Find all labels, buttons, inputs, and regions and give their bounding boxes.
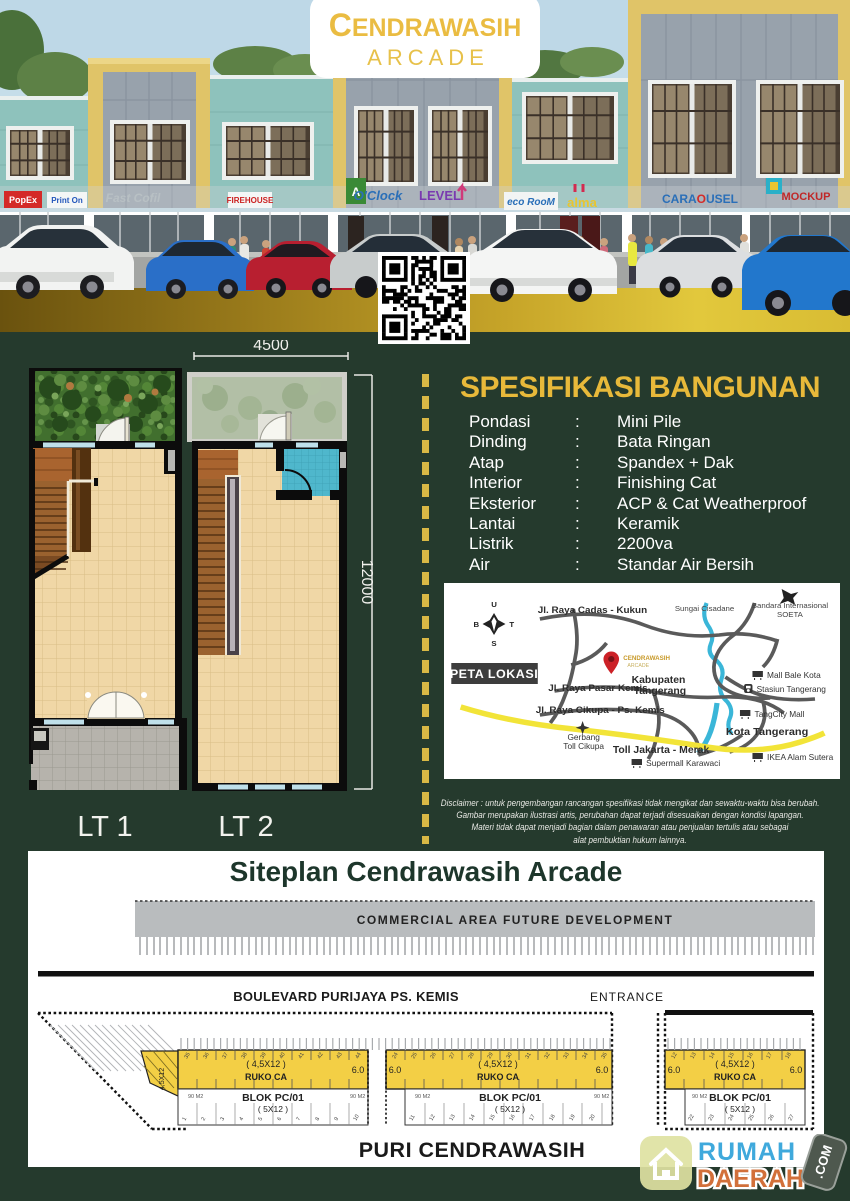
svg-text:SOETA: SOETA [777, 610, 804, 619]
svg-text:LT 1: LT 1 [77, 811, 132, 843]
svg-text:Toll Cikupa: Toll Cikupa [563, 742, 604, 751]
svg-text:6.0: 6.0 [389, 1065, 402, 1075]
svg-text:6.0: 6.0 [790, 1065, 803, 1075]
svg-text:BLOK PC/01: BLOK PC/01 [709, 1092, 771, 1104]
svg-text:90 M2: 90 M2 [350, 1094, 365, 1100]
svg-text:6.0: 6.0 [352, 1065, 365, 1075]
svg-text:Bandara Internasional: Bandara Internasional [752, 601, 829, 610]
svg-text:IKEA Alam Sutera: IKEA Alam Sutera [767, 753, 834, 762]
svg-text:BLOK PC/01: BLOK PC/01 [242, 1092, 304, 1104]
svg-text:Kota Tangerang: Kota Tangerang [726, 726, 808, 738]
svg-text:Sungai Cisadane: Sungai Cisadane [675, 604, 734, 613]
svg-text:6.0: 6.0 [668, 1065, 681, 1075]
svg-text:Gerbang: Gerbang [567, 733, 600, 742]
svg-text:Mall Bale Kota: Mall Bale Kota [767, 671, 821, 680]
svg-text:DAERAH: DAERAH [697, 1165, 804, 1193]
svg-text:LEVEL: LEVEL [419, 188, 461, 203]
svg-text:ARCADE: ARCADE [627, 663, 649, 669]
svg-text:Supermall Karawaci: Supermall Karawaci [646, 759, 720, 768]
svg-text:( 4,5X12 ): ( 4,5X12 ) [246, 1059, 286, 1069]
svg-text:BOULEVARD PURIJAYA PS. KEMI: BOULEVARD PURIJAYA PS. KEMIS [233, 989, 459, 1004]
svg-text:eco RooM: eco RooM [507, 197, 555, 208]
svg-text:Fast Cofil: Fast Cofil [106, 191, 161, 205]
svg-text:RUMAH: RUMAH [698, 1138, 796, 1166]
svg-text:90 M2: 90 M2 [594, 1094, 609, 1100]
svg-text:MOCKUP: MOCKUP [782, 191, 831, 203]
svg-text:PopEx: PopEx [9, 195, 37, 205]
svg-text:COMMERCIAL AREA FUTURE DEVE: COMMERCIAL AREA FUTURE DEVELOPMENT [357, 913, 674, 927]
svg-text:4500: 4500 [253, 340, 289, 354]
svg-text:12000: 12000 [358, 560, 375, 605]
svg-text:PETA LOKASI: PETA LOKASI [450, 667, 538, 681]
svg-text:Jl. Raya Cadas - Kukun: Jl. Raya Cadas - Kukun [538, 605, 647, 616]
svg-text:6.0: 6.0 [596, 1065, 609, 1075]
svg-text:alma: alma [567, 195, 597, 210]
svg-text:90 M2: 90 M2 [415, 1094, 430, 1100]
svg-text:90 M2: 90 M2 [188, 1094, 203, 1100]
svg-text:Tangerang: Tangerang [634, 686, 686, 697]
svg-text:U: U [491, 600, 497, 609]
svg-text:( 5X12 ): ( 5X12 ) [725, 1104, 755, 1114]
svg-text:Kabupaten: Kabupaten [632, 675, 686, 686]
svg-text:Stasiun Tangerang: Stasiun Tangerang [757, 685, 827, 694]
svg-text:BLOK PC/01: BLOK PC/01 [479, 1092, 541, 1104]
svg-text:B: B [473, 620, 479, 629]
svg-text:ENTRANCE: ENTRANCE [590, 990, 664, 1004]
svg-text:Jl. Raya Cikupa - Ps. Kemis: Jl. Raya Cikupa - Ps. Kemis [536, 705, 665, 716]
svg-text:( 4,5X12 ): ( 4,5X12 ) [478, 1059, 518, 1069]
svg-text:4,5X12: 4,5X12 [159, 1068, 166, 1090]
svg-text:RUKO CA: RUKO CA [477, 1072, 519, 1082]
svg-text:CENDRAWASIH: CENDRAWASIH [623, 655, 670, 662]
svg-text:FIREHOUSE: FIREHOUSE [227, 196, 274, 205]
svg-text:LT 2: LT 2 [218, 811, 273, 843]
svg-text:90 M2: 90 M2 [692, 1094, 707, 1100]
svg-text:O'Clock: O'Clock [354, 188, 403, 203]
svg-text:( 5X12 ): ( 5X12 ) [495, 1104, 525, 1114]
svg-text:Toll Jakarta - Merak: Toll Jakarta - Merak [613, 745, 710, 756]
svg-text:( 5X12 ): ( 5X12 ) [258, 1104, 288, 1114]
svg-text:RUKO CA: RUKO CA [714, 1072, 756, 1082]
svg-text:S: S [491, 639, 496, 648]
svg-text:PURI CENDRAWASIH: PURI CENDRAWASIH [359, 1138, 586, 1162]
svg-text:T: T [509, 620, 514, 629]
svg-text:( 4,5X12 ): ( 4,5X12 ) [715, 1059, 755, 1069]
svg-text:Print On: Print On [51, 196, 83, 205]
svg-text:RUKO CA: RUKO CA [245, 1072, 287, 1082]
svg-text:TangCity Mall: TangCity Mall [755, 710, 805, 719]
svg-text:CARAOUSEL: CARAOUSEL [662, 192, 738, 206]
